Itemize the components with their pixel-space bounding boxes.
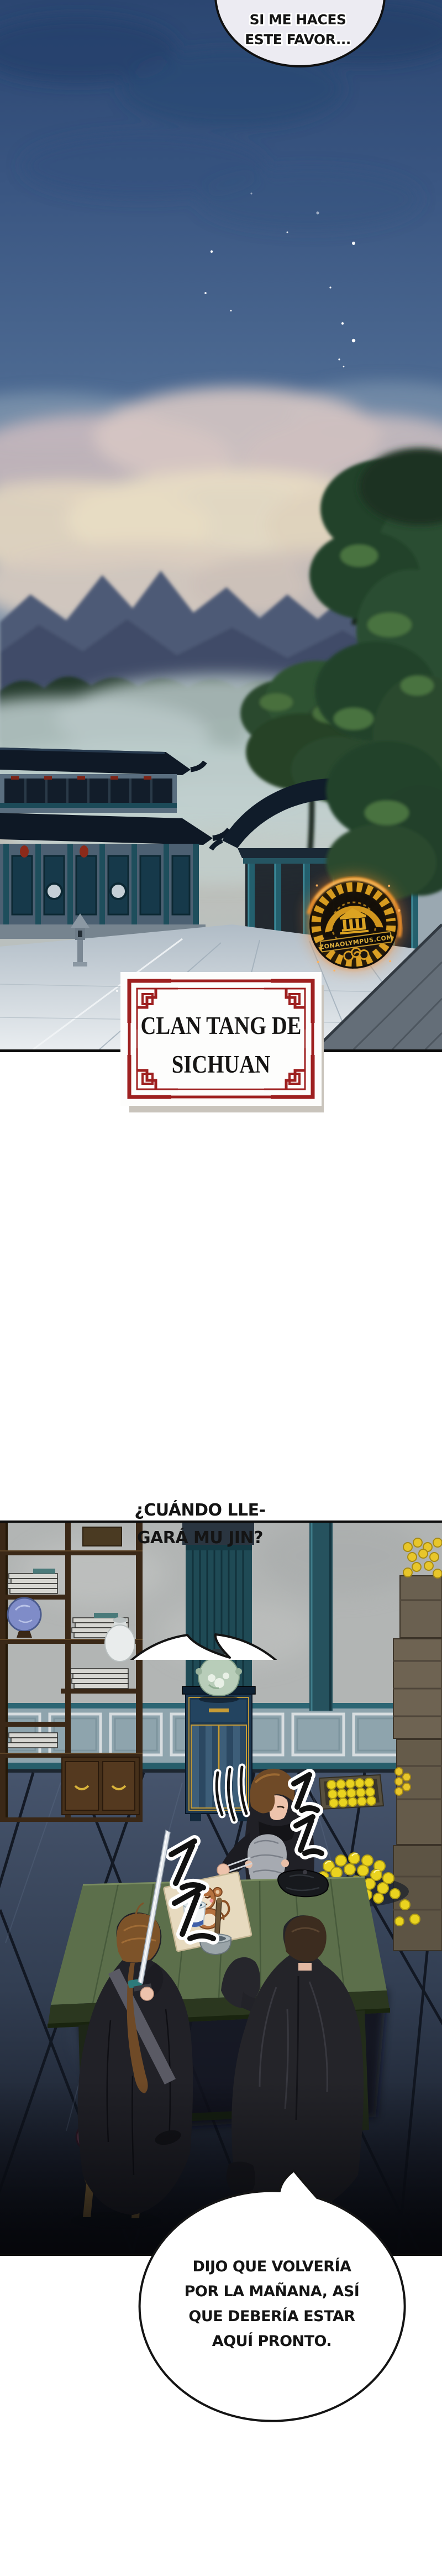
- speech-bubble-bottom-text: DIJO QUE VOLVERÍA POR LA MAÑANA, ASÍ QUE…: [172, 2254, 371, 2354]
- speech-bubble-top-text: SI ME HACES ESTE FAVOR...: [220, 10, 375, 50]
- bubble-line: QUE DEBERÍA ESTAR: [172, 2304, 371, 2329]
- label-line: CLAN TANG DE: [134, 1006, 307, 1045]
- location-label-text: CLAN TANG DE SICHUAN: [120, 1006, 322, 1084]
- gold-coin-tray: [319, 1775, 383, 1809]
- bubble-line: POR LA MAÑANA, ASÍ: [172, 2279, 371, 2304]
- label-line: SICHUAN: [134, 1045, 307, 1084]
- watermark-seal: LEE ANTES ZONAOLYMPUS.COM: [301, 872, 407, 978]
- location-label: CLAN TANG DE SICHUAN: [120, 972, 322, 1106]
- bubble-line: SI ME HACES: [220, 10, 375, 30]
- bubble-line: GARÁ MU JIN?: [117, 1524, 283, 1552]
- webtoon-page: SI ME HACES ESTE FAVOR... LEE ANTES: [0, 0, 442, 2576]
- speech-bubble-middle-text: ¿CUÁNDO LLE- GARÁ MU JIN?: [117, 1497, 283, 1552]
- bubble-line: AQUÍ PRONTO.: [172, 2329, 371, 2354]
- shelf-drawers: [62, 1757, 139, 1815]
- bubble-line: ESTE FAVOR...: [220, 30, 375, 50]
- bubble-line: DIJO QUE VOLVERÍA: [172, 2254, 371, 2279]
- bubble-line: ¿CUÁNDO LLE-: [117, 1497, 283, 1524]
